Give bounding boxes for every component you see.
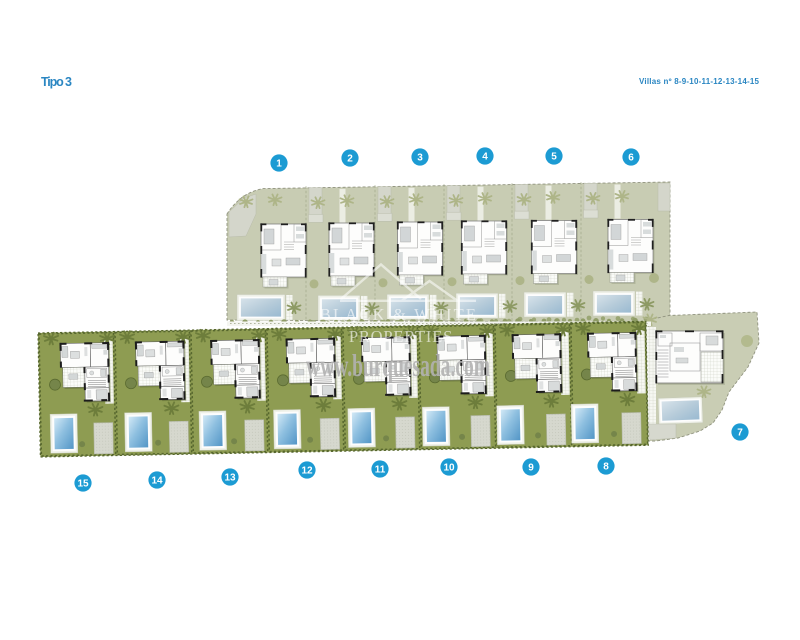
- svg-text:15: 15: [77, 479, 89, 490]
- svg-text:Villas nº 8-9-10-11-12-13-14-1: Villas nº 8-9-10-11-12-13-14-15: [639, 77, 760, 86]
- svg-text:PROPERTIES: PROPERTIES: [349, 327, 453, 346]
- svg-text:12: 12: [301, 466, 313, 477]
- svg-text:3: 3: [417, 153, 423, 164]
- svg-text:13: 13: [224, 473, 236, 484]
- svg-text:BLACK & WHITE: BLACK & WHITE: [320, 305, 478, 324]
- svg-text:5: 5: [551, 152, 557, 163]
- svg-text:7: 7: [737, 428, 743, 439]
- svg-text:9: 9: [528, 463, 534, 474]
- svg-text:Tipo 3: Tipo 3: [41, 75, 72, 89]
- svg-text:www.burquesada.com: www.burquesada.com: [306, 347, 490, 383]
- svg-text:10: 10: [443, 463, 455, 474]
- svg-text:11: 11: [375, 465, 386, 476]
- svg-text:8: 8: [603, 462, 609, 473]
- svg-text:6: 6: [628, 153, 634, 164]
- svg-text:14: 14: [151, 476, 163, 487]
- svg-text:4: 4: [482, 152, 488, 163]
- svg-text:2: 2: [347, 154, 353, 165]
- svg-text:1: 1: [276, 159, 282, 170]
